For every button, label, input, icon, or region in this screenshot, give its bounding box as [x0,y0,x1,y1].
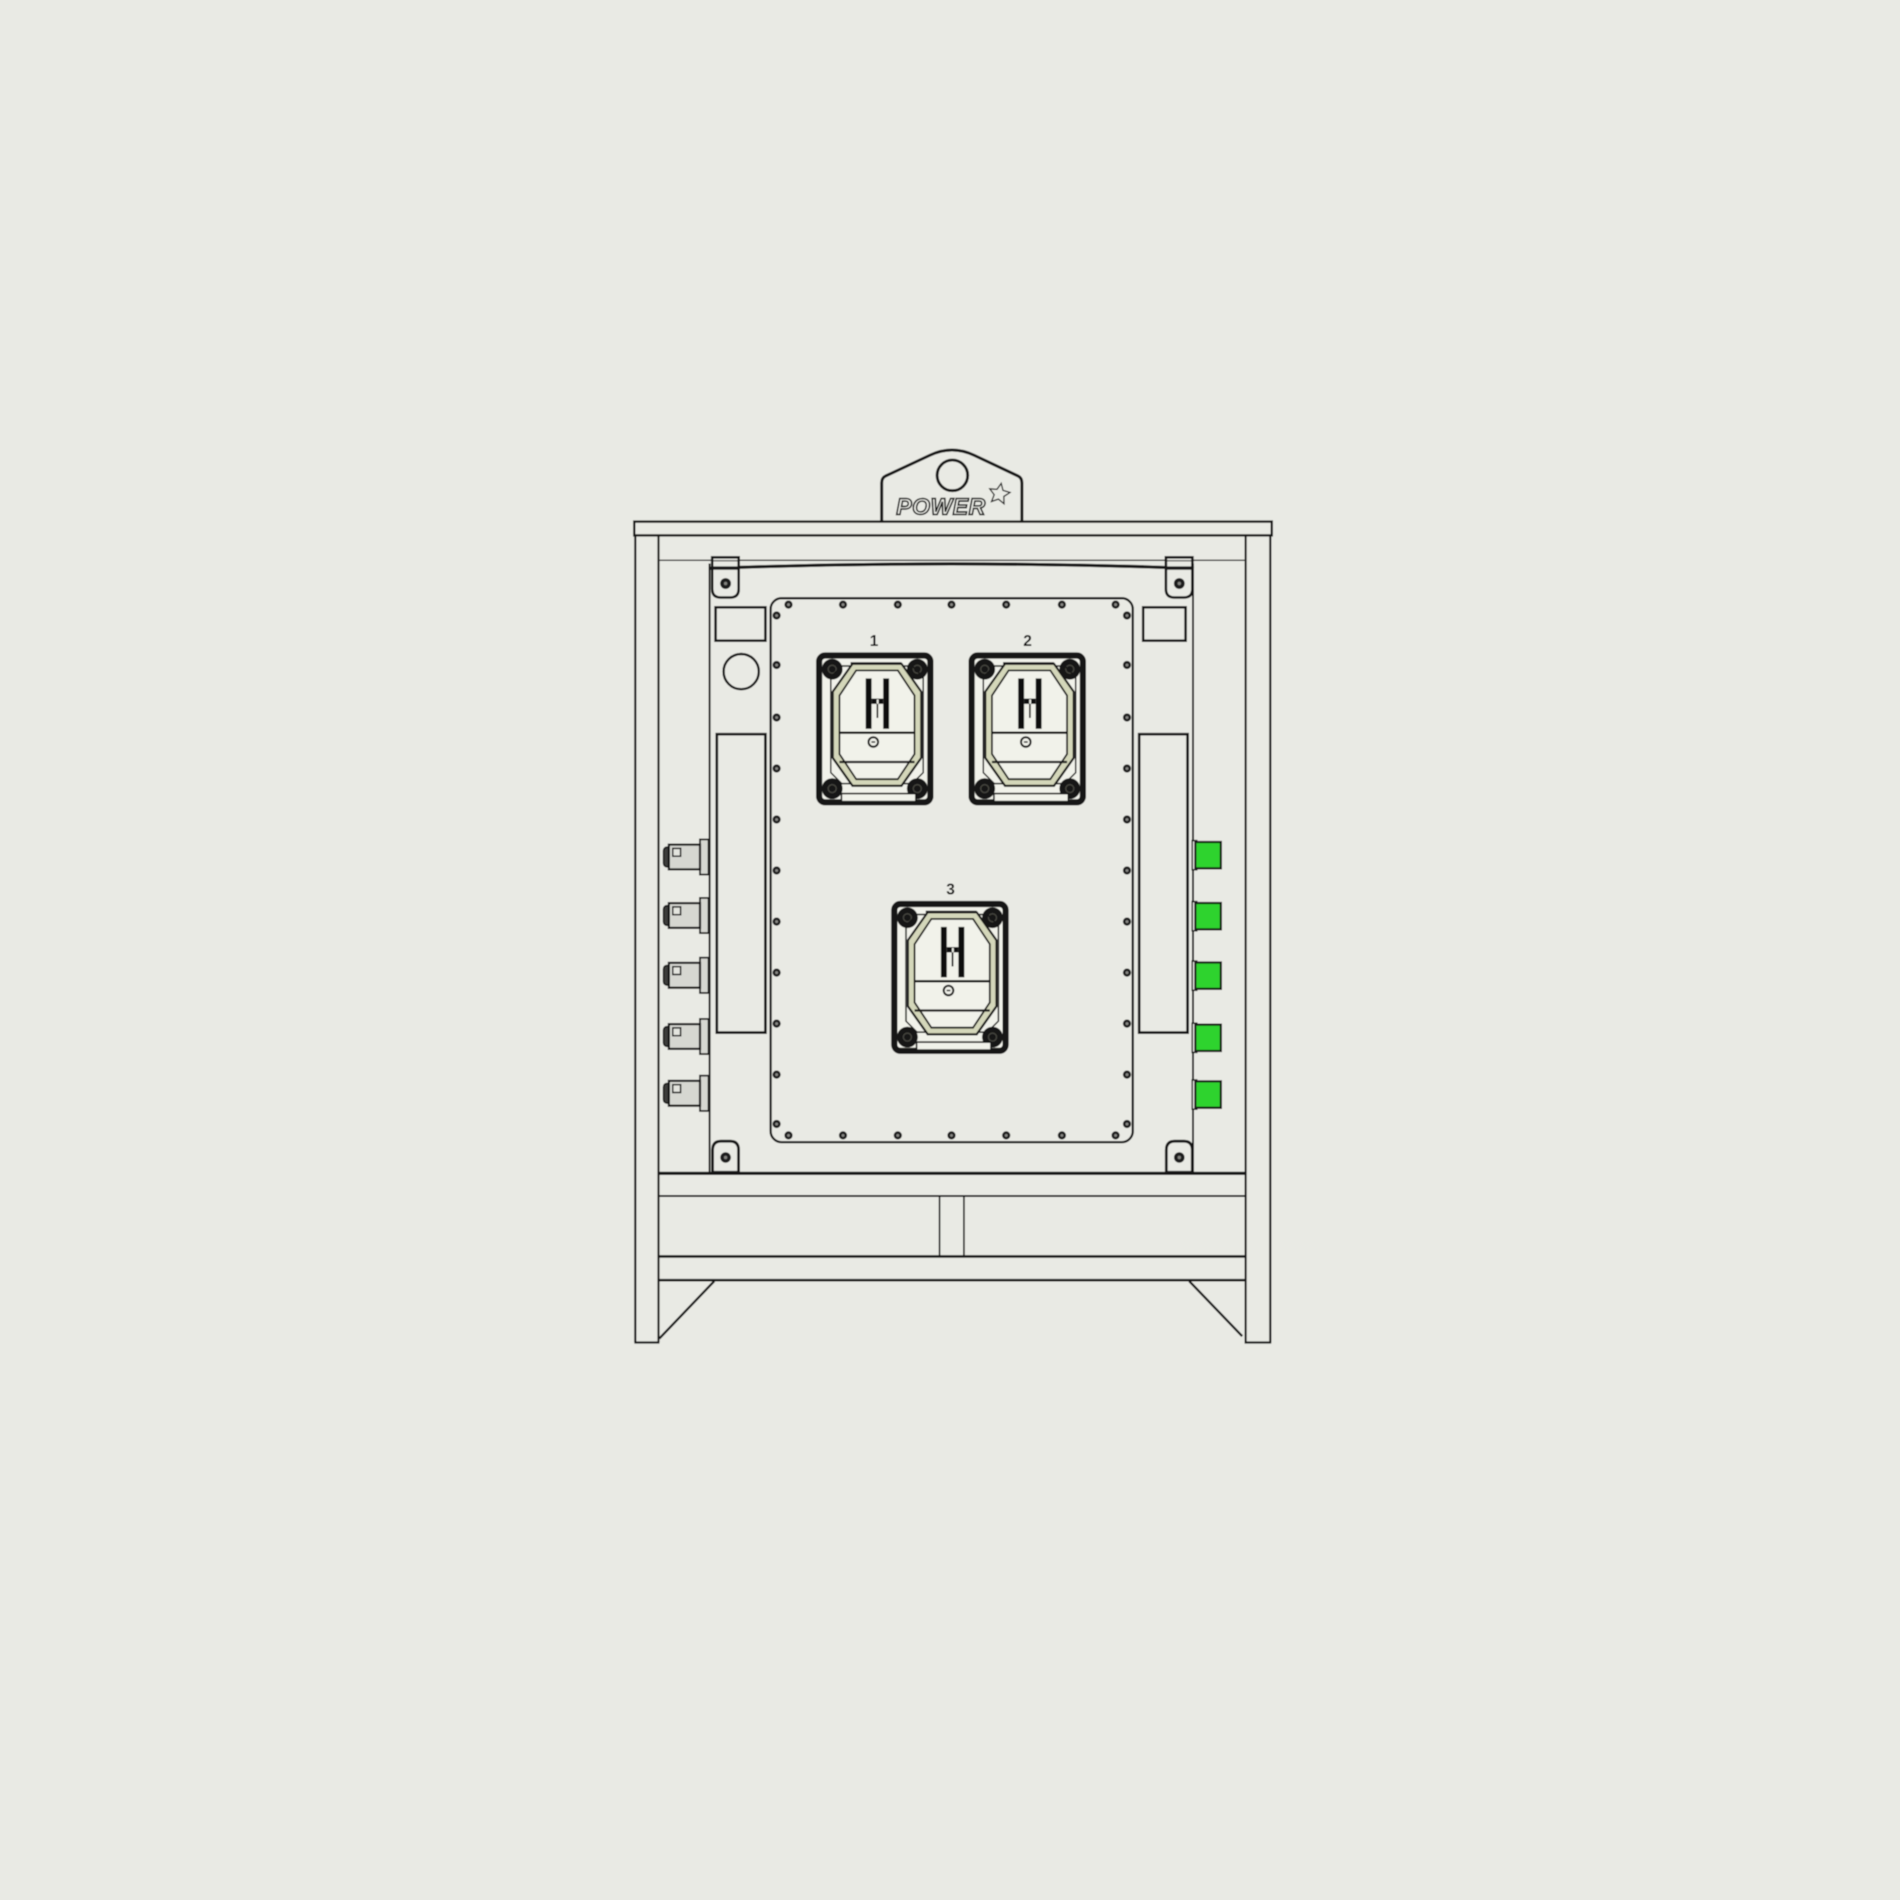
svg-text:POWER: POWER [896,494,985,520]
svg-text:3: 3 [946,882,955,899]
svg-text:2: 2 [1023,633,1032,650]
svg-text:1: 1 [870,633,879,650]
